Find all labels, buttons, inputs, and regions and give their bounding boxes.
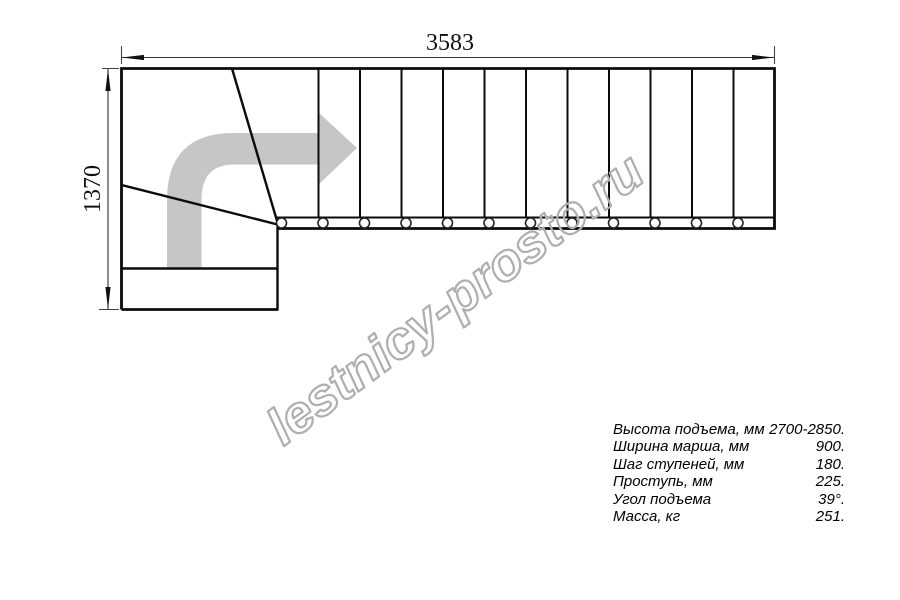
spec-row-step-rise: Шаг ступеней, мм 180. — [613, 456, 845, 473]
spec-value: 180. — [816, 456, 845, 473]
spec-row-tread: Проступь, мм 225. — [613, 473, 845, 490]
spec-label: Угол подъема — [613, 491, 711, 508]
spec-value: 900. — [816, 438, 845, 455]
dim-arrow-down-icon — [105, 287, 110, 309]
spec-row-height: Высота подъема, мм 2700-2850. — [613, 421, 845, 438]
stair-plan-page: 3583 1370 lestnicy-prosto.ru Высота подъ… — [0, 0, 900, 600]
direction-arrow-icon — [167, 112, 357, 269]
spec-label: Ширина марша, мм — [613, 438, 749, 455]
spec-label: Шаг ступеней, мм — [613, 456, 744, 473]
spec-row-angle: Угол подъема 39°. — [613, 491, 845, 508]
dimension-height-label: 1370 — [80, 165, 106, 213]
spec-value: 251. — [816, 508, 845, 525]
dim-arrow-right-icon — [752, 55, 774, 60]
spec-value: 39°. — [818, 491, 845, 508]
dim-arrow-up-icon — [105, 69, 110, 91]
tread-lines — [319, 69, 734, 217]
dimension-width-label: 3583 — [426, 30, 474, 56]
spec-value: 2700-2850. — [769, 421, 845, 438]
dimension-top: 3583 — [122, 30, 775, 64]
spec-label: Высота подъема, мм — [613, 421, 765, 438]
spec-value: 225. — [816, 473, 845, 490]
watermark-text: lestnicy-prosto.ru — [256, 142, 655, 456]
spec-label: Масса, кг — [613, 508, 680, 525]
spec-row-mass: Масса, кг 251. — [613, 508, 845, 525]
spec-row-flight-width: Ширина марша, мм 900. — [613, 438, 845, 455]
dimension-left: 1370 — [80, 69, 119, 310]
dim-arrow-left-icon — [122, 55, 144, 60]
spec-label: Проступь, мм — [613, 473, 713, 490]
spec-table: Высота подъема, мм 2700-2850. Ширина мар… — [613, 421, 845, 525]
